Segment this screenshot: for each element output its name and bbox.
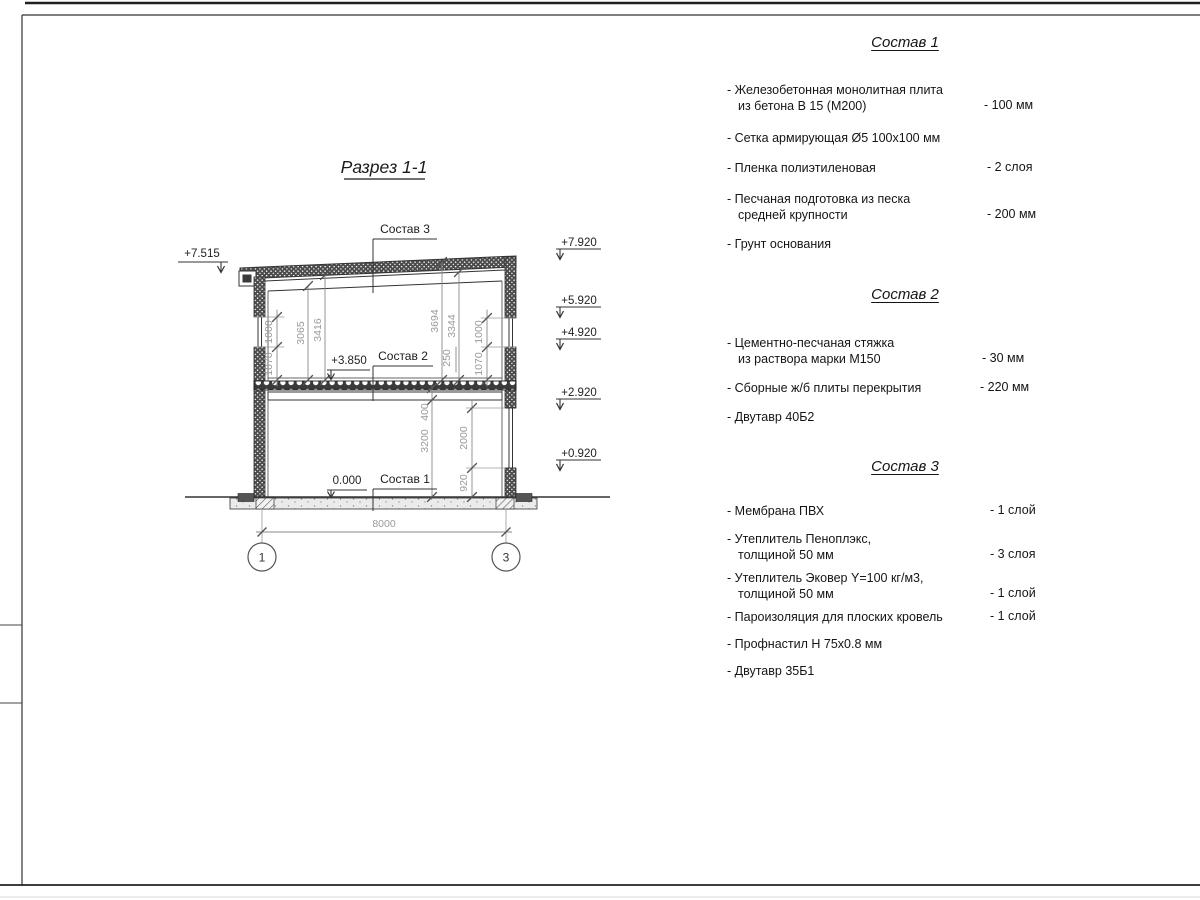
right-wall	[502, 257, 516, 497]
spec-item-text: толщиной 50 мм	[727, 547, 987, 563]
spec-item-text: - Двутавр 40Б2	[727, 409, 987, 425]
spec-item-text: - Железобетонная монолитная плита	[727, 82, 987, 98]
spec-item: - Пленка полиэтиленовая	[727, 160, 987, 176]
spec-item-value: - 30 мм	[982, 351, 1024, 365]
spec-item: - Двутавр 40Б2	[727, 409, 987, 425]
elev-0920: +0.920	[561, 448, 597, 460]
spec-item-text: - Пленка полиэтиленовая	[727, 160, 987, 176]
spec-item-value: - 1 слой	[990, 586, 1036, 600]
elev-7515: +7.515	[184, 248, 220, 260]
elev-4920: +4.920	[561, 327, 597, 339]
spec-item-text: - Утеплитель Эковер Y=100 кг/м3,	[727, 570, 987, 586]
spec-item: - Утеплитель Пеноплэкс, толщиной 50 мм	[727, 531, 987, 563]
spec-item-text: средней крупности	[727, 207, 987, 223]
callout-sostav-2: Состав 2	[378, 349, 428, 363]
spec-item-text: - Профнастил Н 75х0.8 мм	[727, 636, 987, 652]
spec-item-value: - 2 слоя	[987, 160, 1032, 174]
spec-item-text: - Двутавр 35Б1	[727, 663, 987, 679]
spec-item-text: толщиной 50 мм	[727, 586, 987, 602]
spec-item-text: - Цементно-песчаная стяжка	[727, 335, 987, 351]
spec-item-value: - 1 слой	[990, 609, 1036, 623]
sheet-frame	[0, 3, 1200, 897]
dim-3694: 3694	[429, 309, 441, 333]
section-drawing-canvas: Разрез 1-1	[0, 0, 1200, 900]
dim-right-1070: 1070	[473, 352, 485, 376]
spec-title-3: Состав 3	[730, 458, 1080, 475]
spec-item-value: - 3 слоя	[990, 547, 1035, 561]
dim-3065: 3065	[295, 321, 307, 345]
dimensions: 1000 1070 3065 3416 3694 3344 250 1070 1…	[254, 258, 516, 502]
intermediate-floor-slab	[254, 378, 516, 400]
dim-left-1000: 1000	[263, 320, 275, 344]
spec-title-1: Состав 1	[730, 34, 1080, 51]
dim-left-1070: 1070	[263, 352, 275, 376]
dim-2000: 2000	[458, 426, 470, 450]
spec-item: - Мембрана ПВХ	[727, 503, 987, 519]
drawing-title-text: Разрез 1-1	[341, 157, 428, 177]
span-dim: 8000	[372, 518, 396, 530]
spec-item: - Пароизоляция для плоских кровель	[727, 609, 987, 625]
elev-0000: 0.000	[333, 475, 362, 487]
spec-item-text: - Сборные ж/б плиты перекрытия	[727, 380, 987, 396]
roof-edge-inner	[243, 275, 252, 283]
spec-item-text: - Песчаная подготовка из песка	[727, 191, 987, 207]
spec-item: - Песчаная подготовка из песка средней к…	[727, 191, 987, 223]
axis-3-label: 3	[503, 551, 510, 565]
callout-sostav-3: Состав 3	[380, 222, 430, 236]
spec-item-value: - 100 мм	[984, 98, 1033, 112]
drawing-sheet: Разрез 1-1	[0, 0, 1200, 900]
drawing-title: Разрез 1-1	[341, 157, 428, 179]
dim-3416: 3416	[312, 318, 324, 342]
spec-item: - Железобетонная монолитная плита из бет…	[727, 82, 987, 114]
spec-item-text: - Сетка армирующая Ø5 100х100 мм	[727, 130, 987, 146]
spec-item-value: - 220 мм	[980, 380, 1029, 394]
spec-item-value: - 200 мм	[987, 207, 1036, 221]
spec-item-text: - Грунт основания	[727, 236, 987, 252]
spec-item-text: - Утеплитель Пеноплэкс,	[727, 531, 987, 547]
dim-920: 920	[458, 474, 470, 492]
spec-title-2: Состав 2	[730, 286, 1080, 303]
spec-item: - Двутавр 35Б1	[727, 663, 987, 679]
dim-400: 400	[419, 403, 431, 421]
spec-item-text: - Мембрана ПВХ	[727, 503, 987, 519]
callout-sostav-1: Состав 1	[380, 472, 430, 486]
elev-2920: +2.920	[561, 387, 597, 399]
elev-7920: +7.920	[561, 237, 597, 249]
elev-5920: +5.920	[561, 295, 597, 307]
spec-item: - Цементно-песчаная стяжка из раствора м…	[727, 335, 987, 367]
dim-3344: 3344	[446, 314, 458, 338]
axis-1-label: 1	[259, 551, 266, 565]
ground-floor-slab	[185, 494, 610, 510]
spec-item-text: из бетона В 15 (М200)	[727, 98, 987, 114]
spec-item-text: - Пароизоляция для плоских кровель	[727, 609, 987, 625]
spec-item: - Профнастил Н 75х0.8 мм	[727, 636, 987, 652]
axes: 8000 1 3	[248, 509, 520, 571]
spec-item: - Сборные ж/б плиты перекрытия	[727, 380, 987, 396]
dim-right-1000: 1000	[473, 320, 485, 344]
spec-item: - Утеплитель Эковер Y=100 кг/м3, толщино…	[727, 570, 987, 602]
dim-250: 250	[441, 349, 453, 367]
spec-item: - Грунт основания	[727, 236, 987, 252]
spec-item-text: из раствора марки М150	[727, 351, 987, 367]
dim-3200: 3200	[419, 429, 431, 453]
spec-item: - Сетка армирующая Ø5 100х100 мм	[727, 130, 987, 146]
spec-item-value: - 1 слой	[990, 503, 1036, 517]
elev-3850: +3.850	[331, 355, 367, 367]
